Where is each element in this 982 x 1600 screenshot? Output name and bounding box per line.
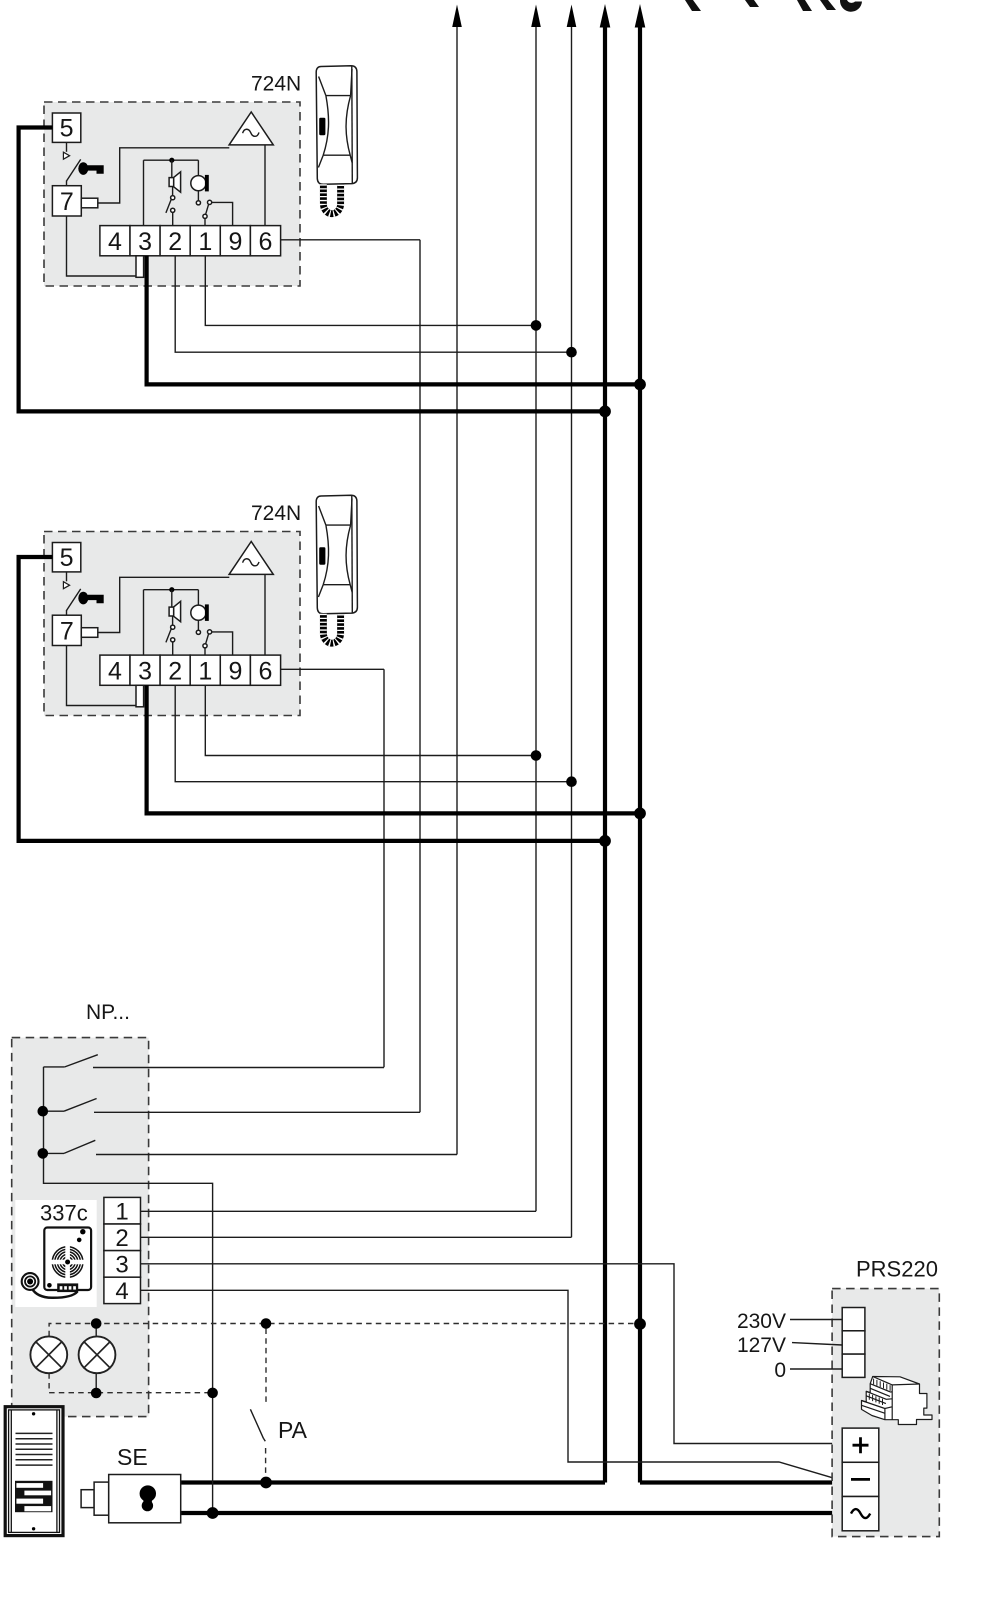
svg-text:724N: 724N [251, 73, 301, 96]
svg-text:5: 5 [60, 115, 74, 143]
svg-text:3: 3 [138, 228, 152, 256]
svg-text:9: 9 [228, 228, 242, 256]
svg-text:SE: SE [117, 1444, 148, 1470]
svg-text:4: 4 [115, 1278, 128, 1305]
svg-text:0: 0 [774, 1359, 786, 1382]
svg-text:1: 1 [115, 1198, 128, 1225]
svg-text:7: 7 [60, 188, 74, 216]
svg-text:4: 4 [108, 228, 122, 256]
svg-text:2: 2 [115, 1225, 128, 1252]
svg-text:230V: 230V [737, 1310, 786, 1333]
svg-text:PA: PA [278, 1417, 308, 1443]
svg-text:2: 2 [168, 228, 182, 256]
svg-text:1: 1 [198, 228, 212, 256]
svg-text:PRS220: PRS220 [856, 1257, 938, 1282]
svg-text:3: 3 [115, 1252, 128, 1279]
svg-text:6: 6 [259, 228, 273, 256]
svg-text:127V: 127V [737, 1334, 786, 1357]
svg-text:NP...: NP... [86, 1001, 130, 1024]
svg-text:337c: 337c [40, 1201, 88, 1226]
